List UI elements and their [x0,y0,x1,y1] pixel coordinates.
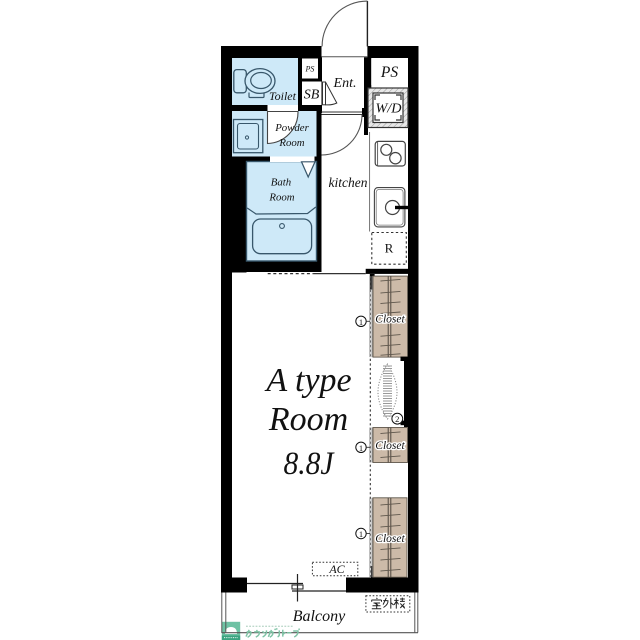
svg-text:1: 1 [359,529,363,539]
svg-text:W/D: W/D [376,102,402,117]
svg-text:Powder: Powder [274,122,309,134]
svg-text:Closet: Closet [375,314,405,326]
svg-text:Closet: Closet [375,533,405,545]
svg-text:Bath: Bath [271,177,291,189]
svg-text:R: R [385,240,394,255]
svg-text:PS: PS [380,64,398,81]
svg-text:Ent.: Ent. [333,76,357,91]
svg-text:1: 1 [359,443,363,453]
svg-text:SB: SB [304,88,320,103]
svg-text:Room: Room [278,137,304,149]
svg-text:A type: A type [264,362,351,399]
svg-text:Room: Room [268,401,348,438]
svg-text:8.8J: 8.8J [284,446,335,482]
svg-text:Toilet: Toilet [269,89,297,103]
svg-text:Closet: Closet [375,440,405,452]
svg-text:PS: PS [305,65,315,74]
svg-text:2: 2 [395,414,399,424]
svg-text:1: 1 [359,317,363,327]
svg-text:kitchen: kitchen [329,175,368,190]
svg-text:Room: Room [268,192,294,204]
svg-text:AC: AC [328,562,345,576]
svg-text:Balcony: Balcony [293,608,346,625]
